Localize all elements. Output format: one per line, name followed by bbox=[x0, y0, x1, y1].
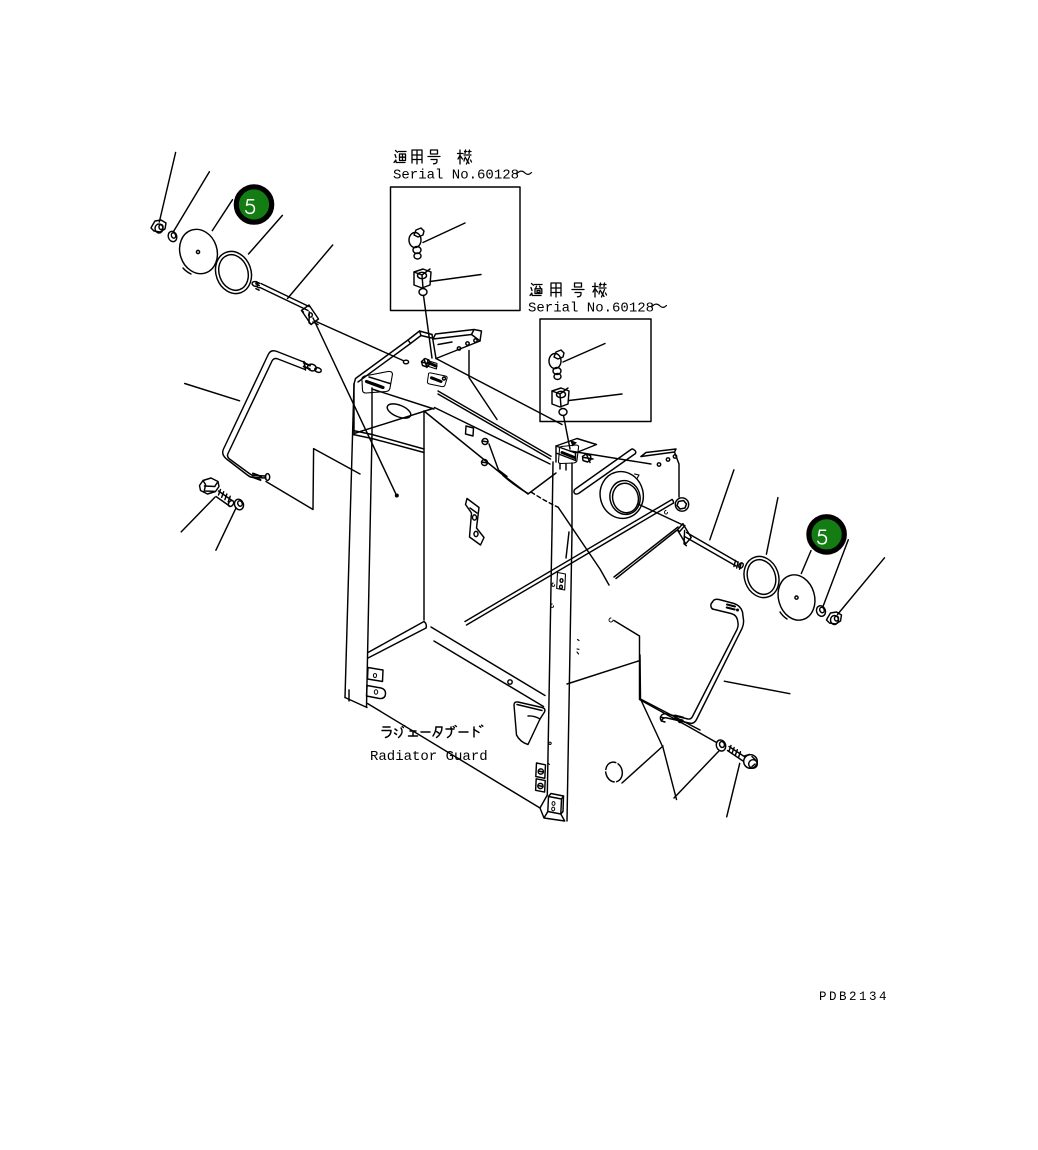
svg-text:PDB2134: PDB2134 bbox=[819, 990, 889, 1004]
svg-text:Serial No.60128: Serial No.60128 bbox=[528, 301, 654, 317]
svg-text:Serial No.60128: Serial No.60128 bbox=[393, 168, 519, 184]
svg-text:Radiator Guard: Radiator Guard bbox=[370, 749, 488, 765]
